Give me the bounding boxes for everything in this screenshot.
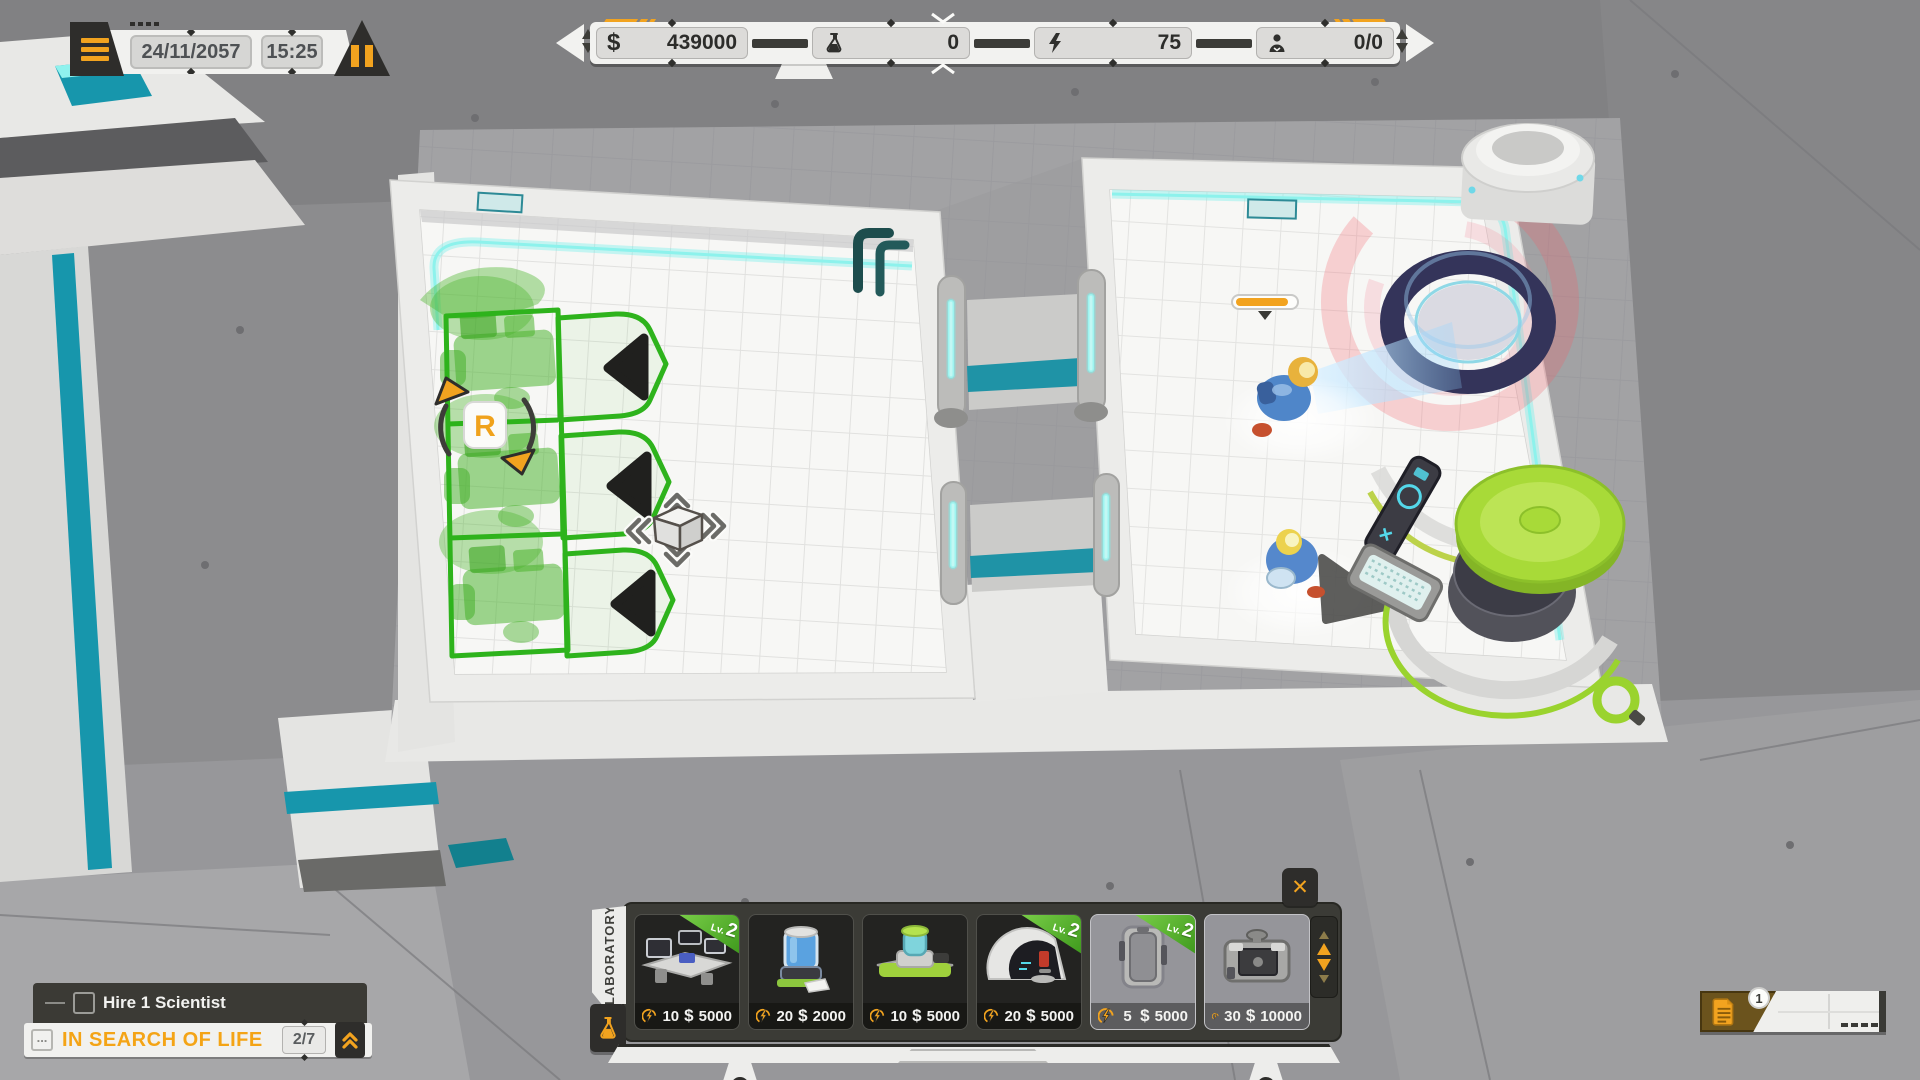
- bar-bottom-tab: [775, 64, 833, 79]
- energy-cost-icon: [1098, 1008, 1115, 1025]
- clock-cluster: 24/11/2057 15:25: [70, 14, 400, 84]
- notification-dashes: [1841, 1023, 1878, 1027]
- price: 10000: [1260, 1008, 1302, 1025]
- bio-analyzer-thumbnail: [867, 923, 963, 993]
- money-readout: $ 439000: [596, 27, 748, 59]
- price: 5000: [927, 1008, 960, 1025]
- item-cost: 30 $ 10000: [1205, 1003, 1309, 1029]
- build-toolbar: LABORATORY ✕ Lv.2: [594, 898, 1354, 1080]
- build-item-storage-locker[interactable]: Lv.2 5 $ 5000: [1090, 914, 1196, 1030]
- toolbar-strut-left: [716, 1061, 764, 1080]
- toolbar-base-deco: [608, 1044, 1340, 1063]
- energy-cost: 10: [890, 1008, 907, 1025]
- build-item-sample-tank[interactable]: 20 $ 2000: [748, 914, 854, 1030]
- date-display[interactable]: 24/11/2057: [130, 35, 252, 69]
- bar-connector: [1196, 39, 1252, 48]
- energy-cost: 20: [1004, 1008, 1021, 1025]
- dollar-icon: $: [1026, 1006, 1035, 1026]
- science-value: 0: [947, 31, 959, 55]
- scroll-down-small-icon[interactable]: [1319, 975, 1329, 983]
- price: 2000: [813, 1008, 846, 1025]
- item-cost: 20 $ 2000: [749, 1003, 853, 1029]
- energy-cost-icon: [756, 1008, 771, 1025]
- quest-title: IN SEARCH OF LIFE: [62, 1029, 273, 1052]
- dollar-icon: $: [912, 1006, 921, 1026]
- item-cost: 20 $ 5000: [977, 1003, 1081, 1029]
- close-icon: ✕: [1291, 875, 1309, 900]
- date-value: 24/11/2057: [142, 41, 241, 64]
- clock-bar: 24/11/2057 15:25: [106, 30, 356, 74]
- build-items: Lv.2 10 $ 5000: [634, 914, 1310, 1030]
- build-item-bio-analyzer[interactable]: 10 $ 5000: [862, 914, 968, 1030]
- item-cost: 10 $ 5000: [863, 1003, 967, 1029]
- price: 5000: [1041, 1008, 1074, 1025]
- dollar-icon: $: [684, 1006, 693, 1026]
- bar-connector: [974, 39, 1030, 48]
- rotate-key-label: R: [474, 410, 496, 443]
- game-screen: R: [0, 0, 1920, 1080]
- build-item-workstation[interactable]: Lv.2 10 $ 5000: [634, 914, 740, 1030]
- build-item-generator[interactable]: 30 $ 10000: [1204, 914, 1310, 1030]
- move-box-icon: [654, 507, 702, 550]
- price: 5000: [699, 1008, 732, 1025]
- energy-cost: 10: [662, 1008, 679, 1025]
- laboratory-flask-icon: [598, 1015, 618, 1041]
- money-value: 439000: [667, 31, 737, 55]
- quest-progress: 2/7: [282, 1026, 326, 1054]
- energy-value: 75: [1158, 31, 1181, 55]
- energy-cost: 30: [1224, 1008, 1241, 1025]
- item-cost: 5 $ 5000: [1091, 1003, 1195, 1029]
- price: 5000: [1155, 1008, 1188, 1025]
- notification-divider: [1778, 1011, 1882, 1013]
- staff-readout: 0/0: [1256, 27, 1394, 59]
- energy-cost-icon: [642, 1008, 657, 1025]
- bar-left-cap: [556, 24, 584, 62]
- dollar-icon: $: [798, 1006, 807, 1026]
- bar-chevron-deco: [928, 63, 958, 75]
- science-readout: 0: [812, 27, 970, 59]
- dollar-icon: $: [607, 29, 620, 57]
- time-display[interactable]: 15:25: [261, 35, 323, 69]
- quest-objective-row: Hire 1 Scientist: [33, 983, 367, 1023]
- bar-right-cap: [1406, 24, 1434, 62]
- toolbar-scroll: [1310, 916, 1338, 998]
- notification-count-badge: 1: [1748, 987, 1770, 1009]
- staff-value: 0/0: [1354, 31, 1383, 55]
- category-label: LABORATORY: [602, 905, 617, 1005]
- energy-cost: 5: [1120, 1008, 1135, 1025]
- resource-bar: $ 439000 0 75: [556, 20, 1434, 66]
- menu-notches: [130, 22, 159, 26]
- energy-readout: 75: [1034, 27, 1192, 59]
- double-chevron-up-icon: [341, 1029, 359, 1051]
- quest-more-icon: ...: [31, 1029, 53, 1051]
- generator-thumbnail: [1209, 923, 1305, 993]
- objective-connector: [45, 1002, 65, 1004]
- quest-panel: Hire 1 Scientist ... IN SEARCH OF LIFE 2…: [24, 983, 404, 1057]
- sample-tank-thumbnail: [753, 923, 849, 993]
- right-cap-arrows: [1396, 29, 1408, 53]
- notification-end-cap: [1879, 991, 1886, 1032]
- toolbar-strut-right: [1242, 1061, 1290, 1080]
- objective-checkbox: [73, 992, 95, 1014]
- energy-cost-icon: [870, 1008, 885, 1025]
- dollar-icon: $: [1246, 1006, 1255, 1026]
- flask-icon: [823, 32, 845, 54]
- scroll-up-small-icon[interactable]: [1319, 931, 1329, 939]
- bar-connector: [752, 39, 808, 48]
- quest-title-row[interactable]: ... IN SEARCH OF LIFE 2/7: [24, 1023, 372, 1057]
- toolbar-base-tab: [898, 1049, 1048, 1063]
- pause-icon: [351, 45, 359, 67]
- energy-cost-icon: [984, 1008, 999, 1025]
- notification-widget[interactable]: 1: [1700, 991, 1886, 1032]
- item-cost: 10 $ 5000: [635, 1003, 739, 1029]
- category-strip: LABORATORY: [592, 906, 626, 1004]
- quest-expand-button[interactable]: [335, 1022, 365, 1058]
- person-icon: [1267, 33, 1287, 53]
- dollar-icon: $: [1140, 1006, 1149, 1026]
- hamburger-icon: [81, 38, 109, 43]
- energy-cost: 20: [776, 1008, 793, 1025]
- close-build-menu-button[interactable]: ✕: [1282, 868, 1318, 906]
- objective-label: Hire 1 Scientist: [103, 993, 226, 1013]
- document-icon: [1711, 997, 1737, 1027]
- time-value: 15:25: [266, 41, 317, 64]
- energy-icon: [1045, 32, 1065, 54]
- bar-chevron-deco: [928, 12, 958, 24]
- build-item-observation-dome[interactable]: Lv.2 20 $ 5000: [976, 914, 1082, 1030]
- scroll-down-icon[interactable]: [1317, 959, 1331, 971]
- energy-cost-icon: [1212, 1008, 1219, 1025]
- scroll-up-icon[interactable]: [1317, 943, 1331, 955]
